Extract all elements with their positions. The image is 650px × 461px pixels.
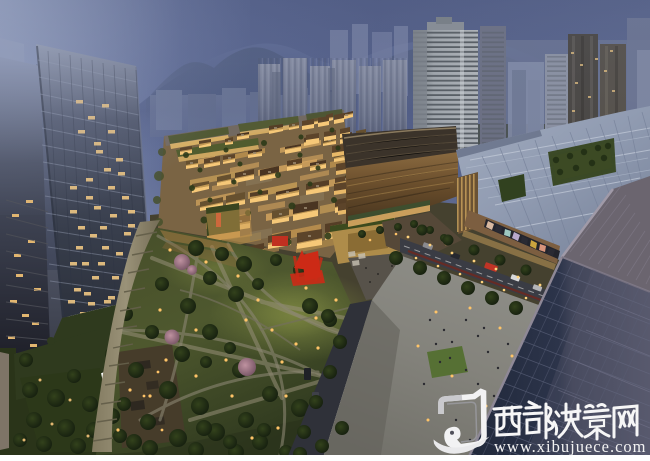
svg-text:www.xibujuece.com: www.xibujuece.com [494, 437, 646, 456]
